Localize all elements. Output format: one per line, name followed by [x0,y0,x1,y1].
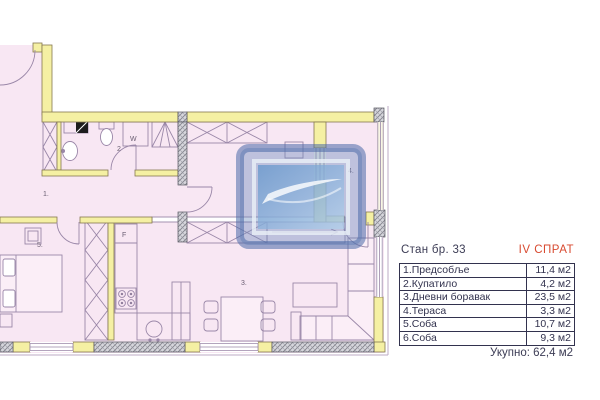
floor-label: IV СПРАТ [519,244,574,256]
room-area-table: 1.Предсобље 11,4 м2 2.Купатило 4,2 м2 3.… [399,263,575,346]
room-area: 4,2 м2 [526,278,574,291]
room-name: 1.Предсобље [400,264,526,277]
room-name: 4.Тераса [400,305,526,318]
bath-living-wall-upper [178,122,187,185]
fridge-label: F [122,232,126,239]
total-area: Укупно: 62,4 м2 [399,347,573,359]
apartment-title: Стан бр. 33 [401,244,466,256]
room-name: 5.Соба [400,318,526,331]
washer-label: W [130,136,137,143]
pillow [3,259,15,276]
room-area: 3,3 м2 [526,305,574,318]
table-row: 1.Предсобље 11,4 м2 [400,264,574,277]
pillow [3,290,15,307]
room-area: 10,7 м2 [526,318,574,331]
bathroom-wall [42,170,108,176]
room-area: 11,4 м2 [526,264,574,277]
table-row: 3.Дневни боравак 23,5 м2 [400,290,574,304]
room-name: 6.Соба [400,332,526,345]
room-area: 9,3 м2 [526,332,574,345]
table-row: 6.Соба 9,3 м2 [400,331,574,345]
dining-table [221,297,263,341]
bedroom-wall [0,217,57,223]
entry-wall [42,45,52,115]
label-hall: 1. [43,191,49,198]
label-living: 3. [241,280,247,287]
watermark-logo [240,148,362,245]
room-name: 3.Дневни боравак [400,291,526,304]
toilet-bowl [101,129,113,146]
top-wall-left [42,112,178,122]
label-bedroom: 5. [37,242,43,249]
table-row: 2.Купатило 4,2 м2 [400,277,574,291]
bath-living-wall-lower [178,212,187,242]
table-row: 4.Тераса 3,3 м2 [400,304,574,318]
top-wall-right [187,112,374,122]
info-header: Стан бр. 33 IV СПРАТ [401,244,574,256]
screenshot-root: F W [0,0,600,400]
right-wall [374,297,383,343]
room-name: 2.Купатило [400,278,526,291]
label-bathroom: 2 [117,146,121,153]
table-row: 5.Соба 10,7 м2 [400,317,574,331]
room-area: 23,5 м2 [526,291,574,304]
